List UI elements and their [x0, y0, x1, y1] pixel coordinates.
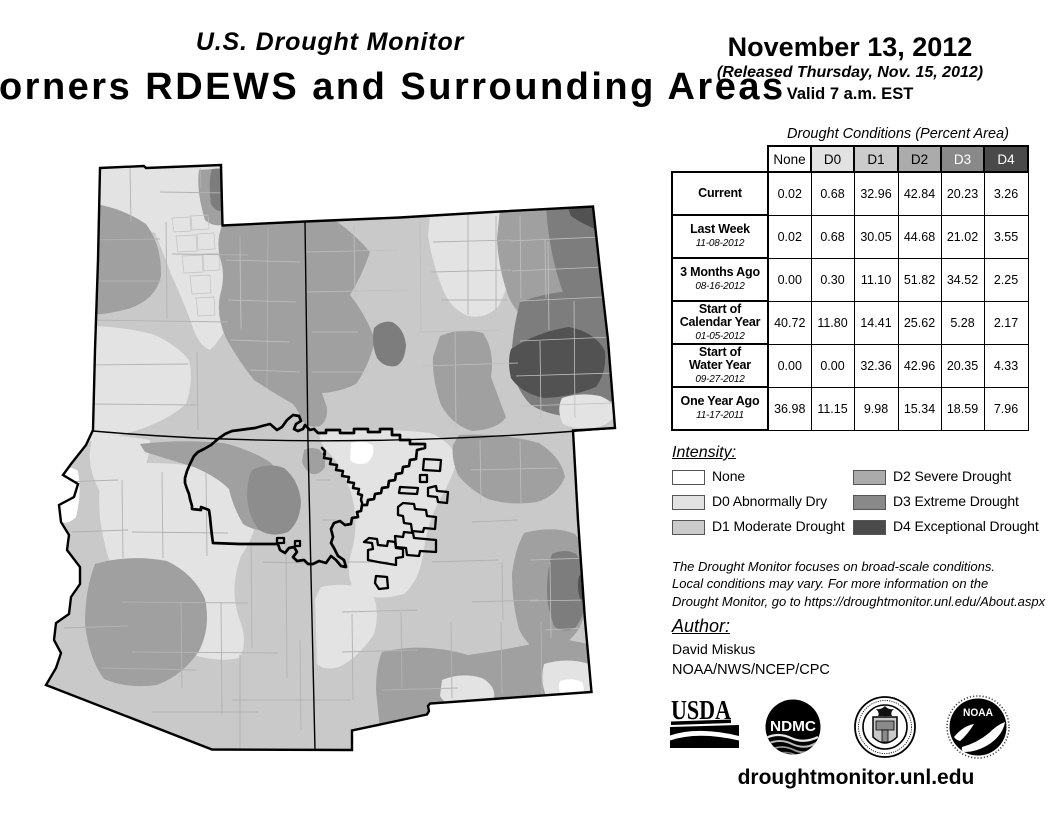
svg-text:NOAA: NOAA — [963, 707, 993, 719]
svg-text:NDMC: NDMC — [770, 719, 817, 735]
